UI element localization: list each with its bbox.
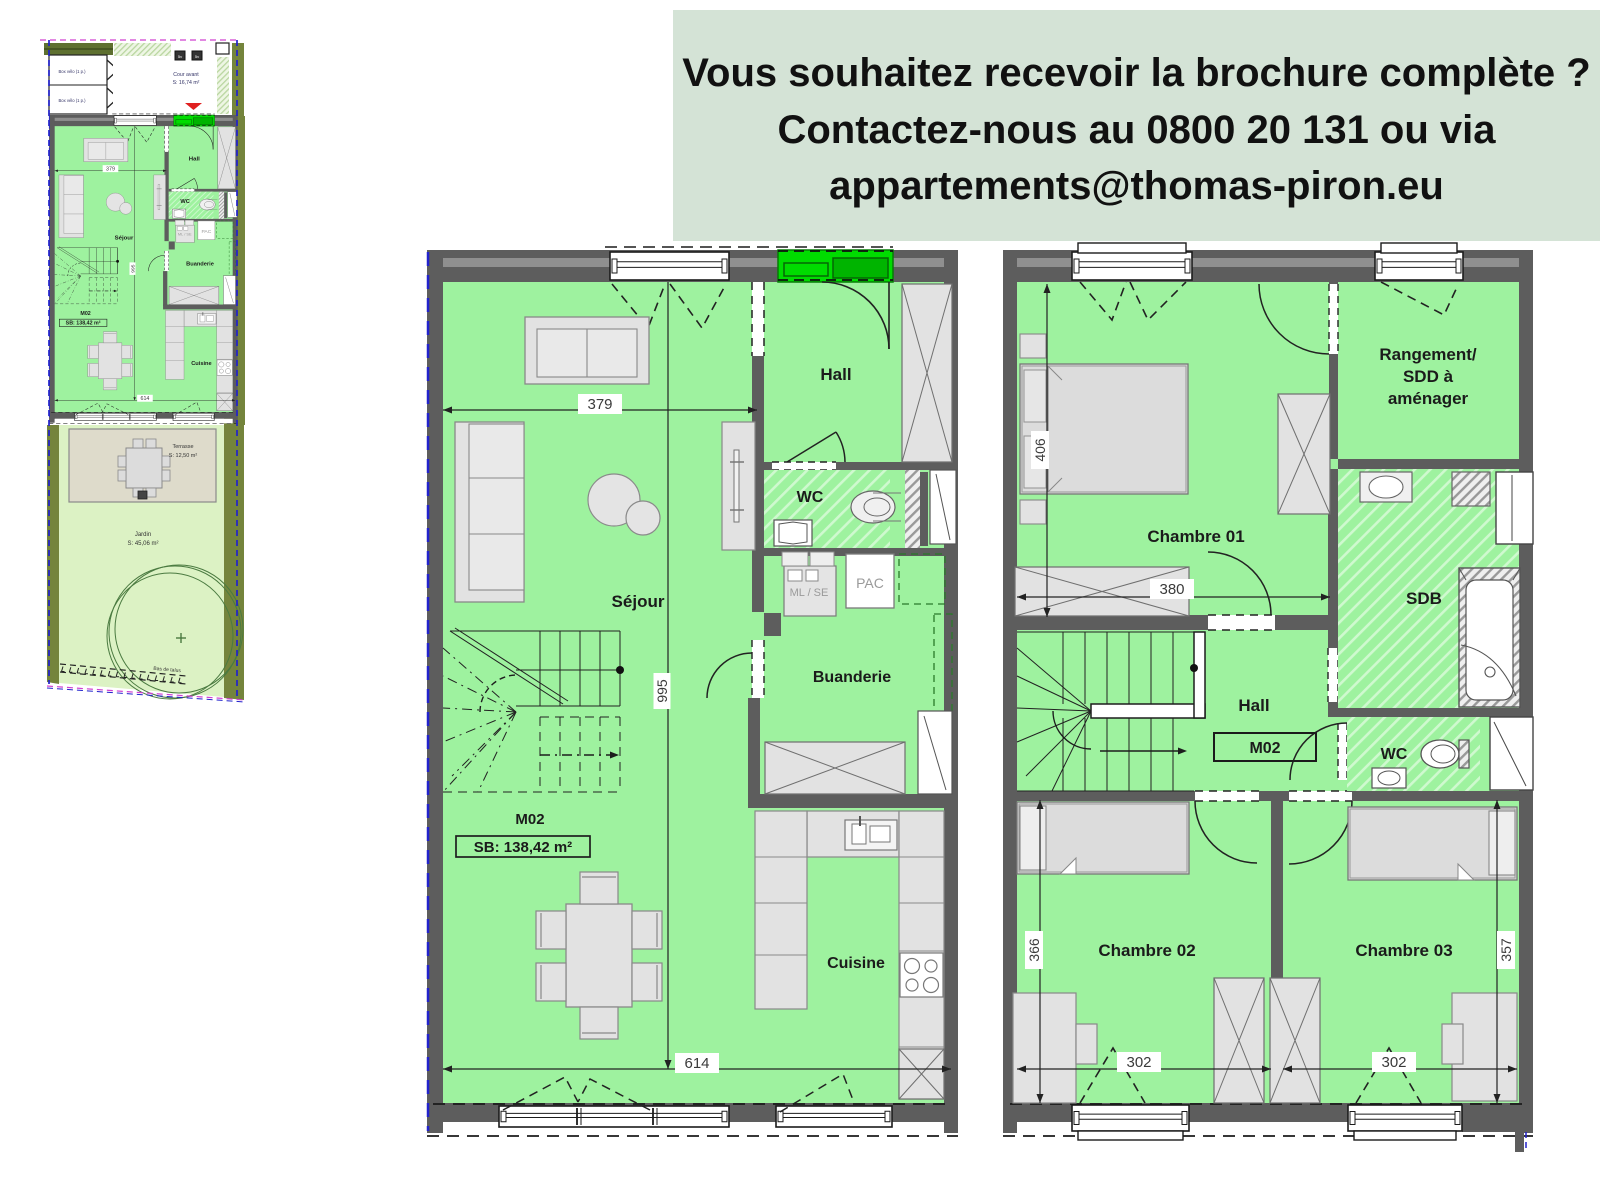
svg-text:302: 302 [1126, 1054, 1151, 1071]
svg-text:S: 16,74 m²: S: 16,74 m² [173, 80, 200, 86]
svg-text:406: 406 [1032, 438, 1048, 462]
svg-text:M02: M02 [1249, 740, 1280, 757]
svg-text:357: 357 [1498, 938, 1514, 962]
svg-text:Cour avant: Cour avant [173, 72, 199, 78]
svg-text:Hall: Hall [1238, 696, 1269, 715]
svg-text:SDD à: SDD à [1403, 367, 1454, 386]
svg-text:SDB: SDB [1406, 589, 1442, 608]
svg-text:366: 366 [1026, 938, 1042, 962]
svg-text:Box vélo (1 p.): Box vélo (1 p.) [59, 69, 87, 74]
svg-text:5v: 5v [195, 54, 199, 59]
svg-text:S: 12,50 m²: S: 12,50 m² [169, 453, 198, 459]
svg-text:5v: 5v [178, 54, 182, 59]
svg-text:Chambre 01: Chambre 01 [1147, 527, 1244, 546]
svg-text:Box vélo (1 p.): Box vélo (1 p.) [59, 98, 87, 103]
svg-text:302: 302 [1381, 1054, 1406, 1071]
svg-text:Rangement/: Rangement/ [1379, 345, 1477, 364]
svg-text:Chambre 03: Chambre 03 [1355, 941, 1452, 960]
svg-text:380: 380 [1159, 581, 1184, 598]
svg-text:Chambre 02: Chambre 02 [1098, 941, 1195, 960]
svg-text:aménager: aménager [1388, 389, 1469, 408]
svg-text:WC: WC [1381, 746, 1408, 763]
svg-text:S: 45,06 m²: S: 45,06 m² [127, 541, 158, 547]
svg-text:Terrasse: Terrasse [172, 444, 193, 450]
svg-text:Jardin: Jardin [135, 532, 151, 538]
